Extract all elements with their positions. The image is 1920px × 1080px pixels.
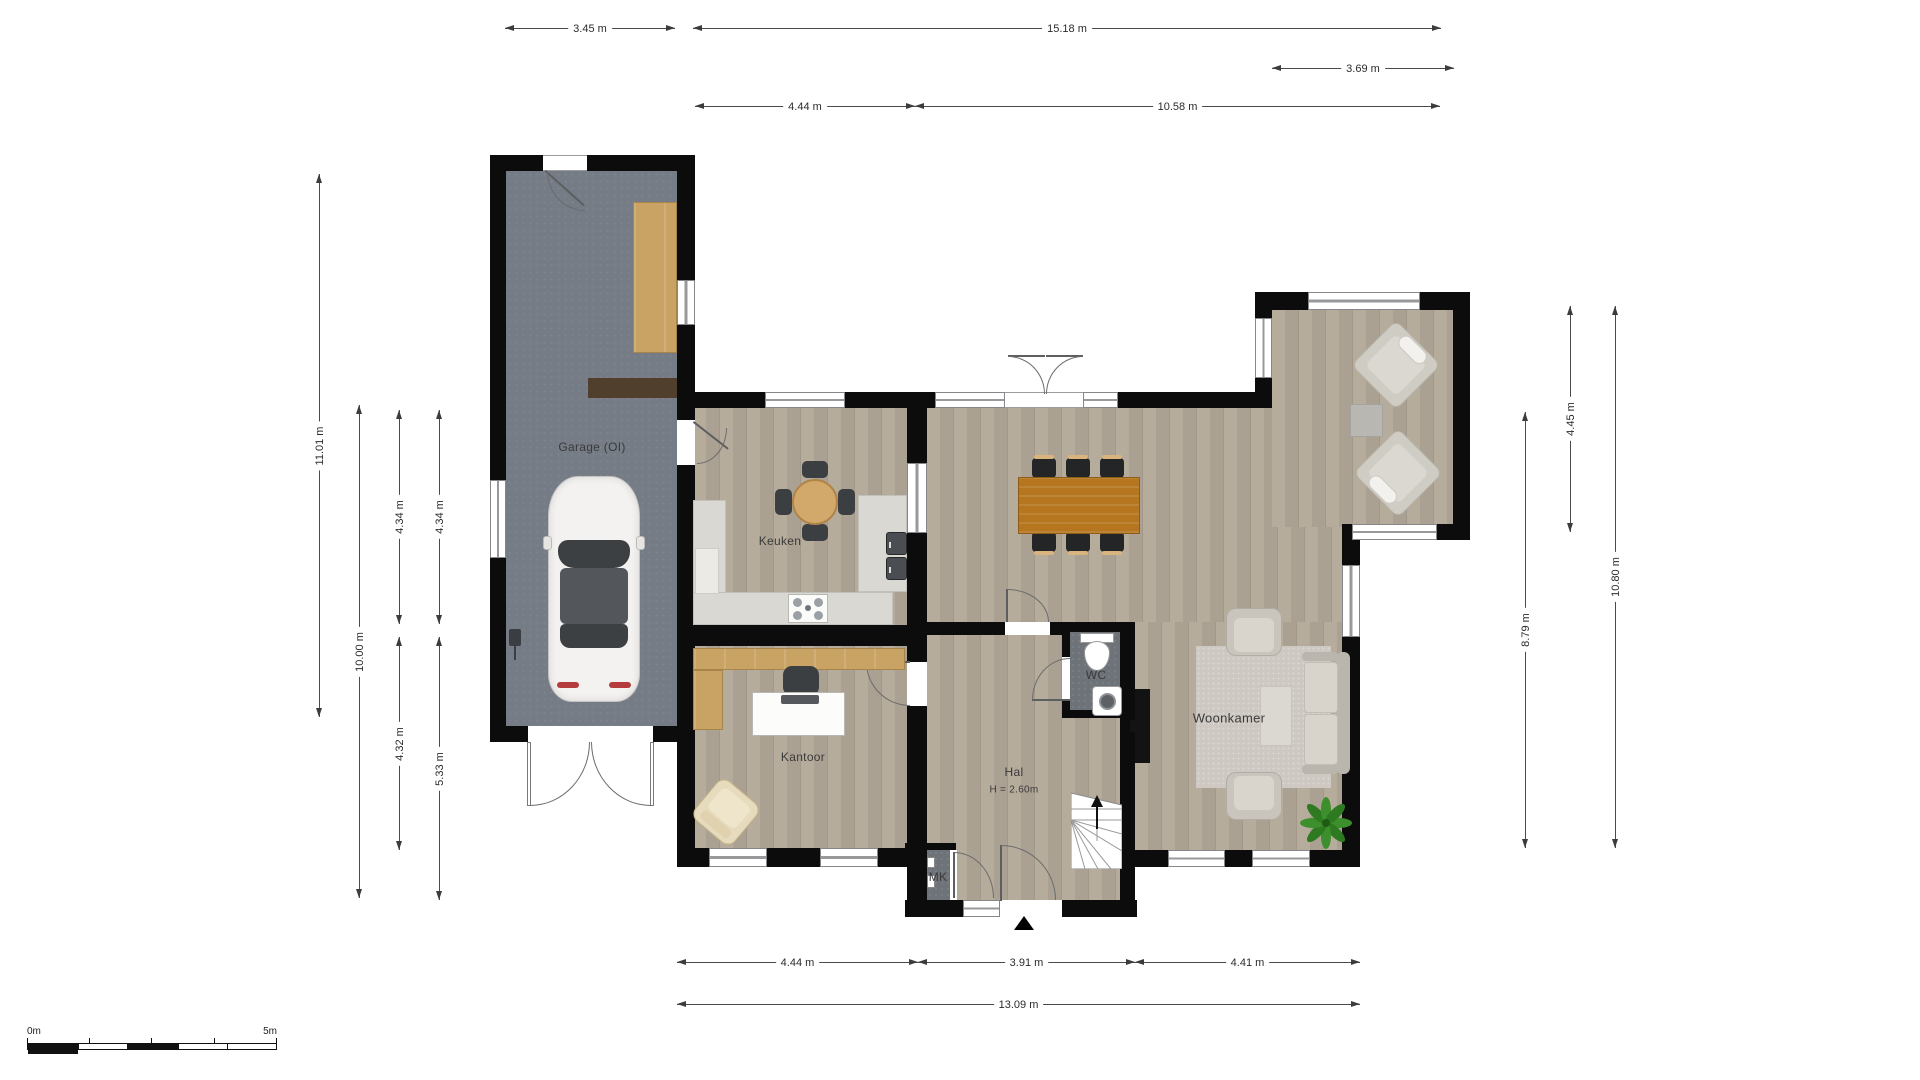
dim-label: 4.45 m: [1565, 397, 1577, 441]
room-label-mk: MK: [929, 870, 948, 884]
dim-label: 13.09 m: [994, 999, 1044, 1011]
dim-right-445: 4.45 m: [1570, 306, 1571, 532]
car-taillight: [557, 682, 579, 688]
stairs: [1071, 789, 1122, 869]
room-label-wc: WC: [1086, 668, 1107, 682]
dim-top-1058: 10.58 m: [915, 106, 1440, 107]
room-label-hal: Hal: [1005, 765, 1024, 779]
dim-bottom-391: 3.91 m: [918, 962, 1135, 963]
chair-back: [1034, 551, 1054, 555]
scale-bar-ruler: [27, 1043, 277, 1050]
dim-right-1080: 10.80 m: [1615, 306, 1616, 848]
french-door-sill: [1005, 392, 1083, 408]
wall: [490, 155, 543, 171]
window: [1083, 392, 1118, 408]
dim-top-444: 4.44 m: [695, 106, 915, 107]
serving-hatch-window: [907, 463, 927, 533]
dining-chair: [1100, 532, 1124, 552]
chair-back: [1102, 551, 1122, 555]
dim-label: 10.58 m: [1153, 101, 1203, 113]
dim-label: 4.41 m: [1226, 957, 1270, 969]
dim-label: 11.01 m: [314, 421, 326, 470]
wall: [677, 848, 709, 867]
wall: [1310, 850, 1360, 867]
entry-sidelight-window: [963, 900, 1000, 917]
stove: [788, 594, 828, 623]
dim-label: 10.80 m: [1610, 552, 1622, 602]
wall: [695, 392, 765, 408]
wall: [490, 558, 506, 742]
dim-top-369: 3.69 m: [1272, 68, 1454, 69]
wall: [905, 900, 963, 917]
car: [548, 476, 640, 702]
window: [1308, 292, 1420, 310]
plant: [1298, 796, 1354, 850]
tv: [1135, 689, 1150, 763]
wall: [905, 843, 956, 850]
window: [1342, 565, 1360, 637]
mk-meter-box: [927, 857, 935, 868]
sofa-arm: [1302, 765, 1338, 774]
burner: [814, 611, 823, 620]
sofa-cushion: [1304, 662, 1338, 713]
window: [820, 848, 878, 867]
entrance-marker: [1014, 916, 1034, 930]
office-wardrobe-side: [693, 670, 723, 730]
kitchen-sink: [886, 557, 907, 580]
car-taillight: [609, 682, 631, 688]
kitchen-chair: [838, 489, 855, 515]
door-arc: [591, 742, 651, 806]
scale-tick: [27, 1038, 28, 1044]
scale-segment: [78, 1044, 128, 1049]
scale-segment: [28, 1049, 78, 1054]
kitchen-chair: [802, 461, 828, 478]
chair-back: [1068, 551, 1088, 555]
dim-label: 4.34 m: [434, 495, 446, 539]
dim-label: 8.79 m: [1520, 608, 1532, 652]
car-roof: [560, 568, 628, 624]
dim-left-1101: 11.01 m: [319, 174, 320, 717]
office-desk: [752, 692, 845, 736]
side-table: [1350, 404, 1383, 437]
burner: [793, 598, 802, 607]
kitchen-appliance-tall: [695, 548, 719, 594]
armchair-cushion: [1234, 618, 1274, 652]
kitchen-round-table: [792, 479, 838, 525]
dim-left-434b: 4.34 m: [439, 410, 440, 624]
burner: [814, 598, 823, 607]
door-arc: [1046, 356, 1083, 394]
wall: [1437, 524, 1453, 540]
wall: [927, 622, 1005, 635]
hall-living-door: [1005, 622, 1050, 635]
scale-tick: [214, 1038, 215, 1044]
kitchen-chair: [775, 489, 792, 515]
dim-top-1518: 15.18 m: [693, 28, 1441, 29]
door-arc: [530, 742, 590, 806]
scale-segment: [128, 1044, 178, 1049]
sink-handle: [889, 567, 891, 573]
garage-boiler: [509, 629, 521, 646]
dining-chair: [1032, 458, 1056, 478]
window: [1255, 318, 1272, 378]
garage-rear-door: [543, 155, 587, 171]
dim-label: 3.91 m: [1005, 957, 1049, 969]
wall: [587, 155, 695, 171]
dim-top-345: 3.45 m: [505, 28, 675, 29]
wall: [1225, 850, 1252, 867]
garage-kitchen-door: [677, 420, 695, 465]
wall: [1062, 900, 1137, 917]
chair-back: [1068, 455, 1088, 459]
window: [1352, 524, 1437, 540]
dining-chair: [1066, 532, 1090, 552]
room-label-garage: Garage (OI): [558, 440, 625, 454]
scale-tick: [89, 1038, 90, 1044]
wall: [1255, 378, 1272, 408]
dining-chair: [1066, 458, 1090, 478]
sofa-back: [1336, 652, 1350, 774]
window: [765, 392, 845, 408]
window: [490, 480, 506, 558]
wall: [907, 706, 927, 900]
wall: [1062, 632, 1070, 657]
burner-knob: [805, 605, 811, 611]
garage-storage-cabinet: [633, 202, 677, 353]
hall-office-door: [907, 662, 927, 706]
kitchen-sink: [886, 532, 907, 555]
dim-label: 3.45 m: [568, 23, 612, 35]
garage-door-opening: [528, 726, 653, 742]
wall: [677, 171, 695, 280]
wc-basin: [1092, 686, 1122, 716]
car-rear-window: [560, 624, 628, 648]
wall: [490, 726, 528, 742]
scale-tick: [151, 1038, 152, 1044]
scale-start-label: 0m: [27, 1026, 41, 1037]
wall: [1255, 292, 1308, 310]
window: [1168, 850, 1225, 867]
wall: [845, 392, 935, 408]
chair-back: [1102, 455, 1122, 459]
dining-table: [1018, 477, 1140, 534]
window: [677, 280, 695, 325]
dim-right-879: 8.79 m: [1525, 412, 1526, 848]
wall: [1453, 292, 1470, 540]
sink-handle: [889, 542, 891, 548]
window: [709, 848, 767, 867]
car-windshield: [558, 540, 630, 568]
wall: [907, 408, 927, 463]
chair-back: [1034, 455, 1054, 459]
burner: [793, 611, 802, 620]
scale-tick: [276, 1038, 277, 1044]
dim-label: 4.34 m: [394, 495, 406, 539]
garage-boiler-pipe: [514, 646, 516, 660]
room-label-hal-height: H = 2.60m: [989, 785, 1038, 796]
dim-left-434a: 4.34 m: [399, 410, 400, 624]
dim-label: 5.33 m: [434, 747, 446, 791]
dim-bottom-1309: 13.09 m: [677, 1004, 1360, 1005]
dim-bottom-441: 4.41 m: [1135, 962, 1360, 963]
wall: [1120, 622, 1135, 917]
dim-left-1000: 10.00 m: [359, 405, 360, 898]
dim-left-432: 4.32 m: [399, 637, 400, 850]
wall: [677, 325, 695, 420]
wall: [490, 171, 506, 480]
tv-bracket: [1130, 720, 1135, 732]
scale-bar: 0m 5m: [27, 1026, 277, 1052]
toilet: [1080, 633, 1114, 671]
room-label-woonkamer: Woonkamer: [1193, 711, 1266, 726]
dim-label: 4.44 m: [776, 957, 820, 969]
wall: [767, 848, 820, 867]
wall: [1118, 392, 1272, 408]
room-label-keuken: Keuken: [759, 534, 802, 548]
armchair-cushion: [1234, 776, 1274, 810]
garage-shelf: [588, 378, 677, 398]
dim-label: 4.32 m: [394, 722, 406, 766]
dim-left-533: 5.33 m: [439, 637, 440, 900]
dim-label: 10.00 m: [354, 627, 366, 677]
dim-label: 4.44 m: [783, 101, 827, 113]
floor-plan-canvas: Garage (OI) Keuken Kantoor Hal H = 2.60m…: [0, 0, 1920, 1080]
room-label-kantoor: Kantoor: [781, 750, 825, 764]
kitchen-chair: [802, 524, 828, 541]
sofa-cushion: [1304, 714, 1338, 765]
desk-monitor: [781, 695, 819, 704]
dining-chair: [1032, 532, 1056, 552]
window: [935, 392, 1005, 408]
wall: [677, 625, 927, 646]
car-mirror: [636, 536, 645, 550]
dining-chair: [1100, 458, 1124, 478]
scale-end-label: 5m: [263, 1026, 277, 1037]
front-door-opening: [1000, 900, 1062, 917]
dim-bottom-444: 4.44 m: [677, 962, 918, 963]
scale-segment: [178, 1044, 228, 1049]
dim-label: 15.18 m: [1042, 23, 1092, 35]
armchair: [1226, 608, 1282, 656]
window: [1252, 850, 1310, 867]
sofa-arm: [1302, 652, 1338, 661]
sofa: [1302, 652, 1350, 774]
door-arc: [1008, 356, 1045, 394]
basin-bowl: [1099, 693, 1116, 710]
armchair: [1226, 772, 1282, 820]
car-mirror: [543, 536, 552, 550]
toilet-bowl: [1084, 641, 1110, 671]
dim-label: 3.69 m: [1341, 63, 1385, 75]
